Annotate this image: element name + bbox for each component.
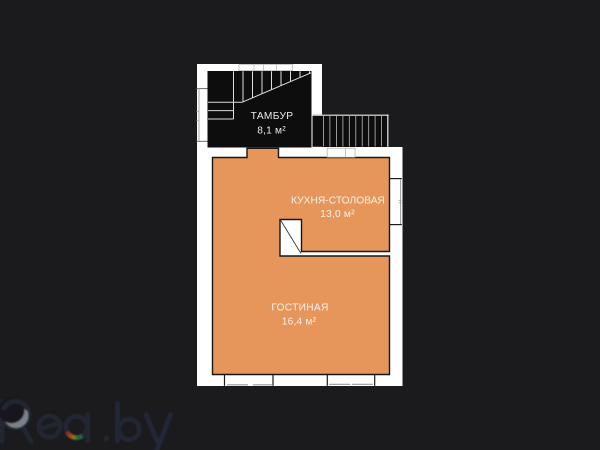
svg-text:КУХНЯ-СТОЛОВАЯ: КУХНЯ-СТОЛОВАЯ [291,195,385,206]
svg-text:8,1 м²: 8,1 м² [257,126,286,137]
svg-text:13,0 м²: 13,0 м² [320,209,355,220]
svg-text:ГОСТИНАЯ: ГОСТИНАЯ [271,302,328,313]
svg-text:ТАМБУР: ТАМБУР [251,111,294,122]
svg-text:16,4 м²: 16,4 м² [282,317,317,328]
